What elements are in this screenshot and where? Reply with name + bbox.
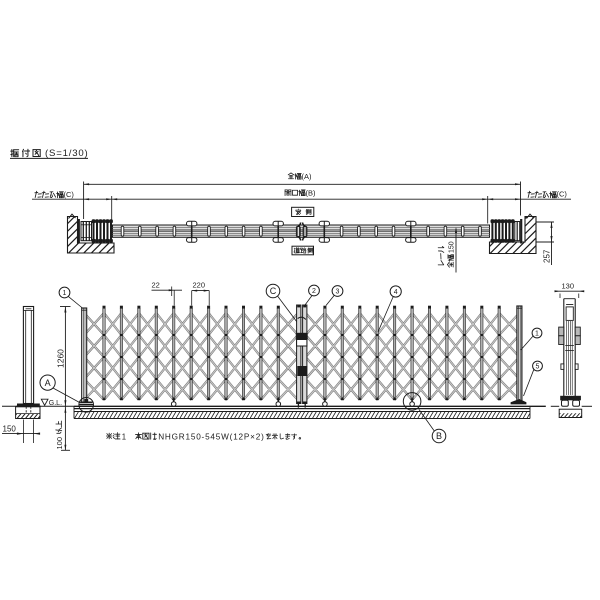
svg-text:1260: 1260 — [56, 349, 66, 368]
svg-text:(C): (C) — [64, 190, 75, 199]
svg-text:C: C — [270, 286, 277, 296]
svg-text:1: 1 — [63, 290, 67, 297]
svg-text:100: 100 — [55, 437, 64, 450]
svg-text:1: 1 — [122, 432, 126, 441]
svg-text:(S=1/30): (S=1/30) — [45, 148, 88, 159]
svg-text:(C): (C) — [557, 189, 568, 198]
svg-text:B: B — [436, 431, 442, 441]
svg-text:130: 130 — [562, 282, 575, 291]
svg-text:5: 5 — [536, 364, 540, 371]
svg-text:150: 150 — [3, 425, 17, 434]
svg-text:(B): (B) — [306, 189, 317, 198]
svg-text:4: 4 — [394, 289, 398, 296]
svg-text:22: 22 — [152, 281, 160, 290]
svg-text:150: 150 — [449, 241, 456, 253]
svg-text:A: A — [45, 378, 51, 388]
svg-text:1: 1 — [535, 331, 539, 338]
svg-text:NHGR150-545W(12P×2): NHGR150-545W(12P×2) — [158, 433, 264, 442]
svg-text:220: 220 — [193, 281, 206, 290]
svg-text:(A): (A) — [302, 172, 313, 181]
svg-text:3: 3 — [336, 289, 340, 296]
svg-text:257: 257 — [543, 249, 552, 263]
svg-text:2: 2 — [312, 288, 316, 295]
